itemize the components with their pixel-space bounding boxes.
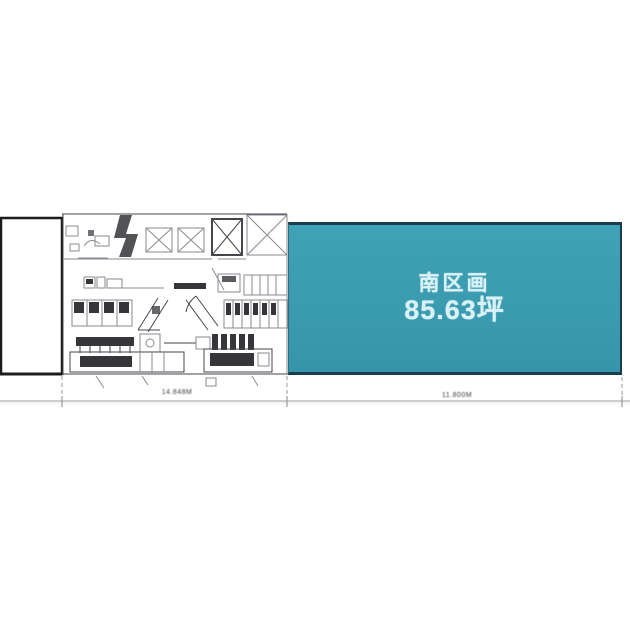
elevator-bank (146, 215, 287, 255)
restroom-stalls (72, 296, 288, 332)
core-plan (62, 214, 288, 388)
stairwell (114, 215, 138, 257)
south-section-name: 南区画 (419, 272, 491, 295)
mid-fixtures (84, 268, 287, 295)
left-section-outline (0, 218, 62, 374)
south-section-area: 85.63坪 (404, 296, 505, 326)
dimension-line (0, 376, 630, 407)
dimension-label-left: 14.848M (162, 389, 193, 396)
entry-lobby-linework (66, 226, 109, 258)
floorplan-image: 南区画 85.63坪 14.848M 11.800M (0, 0, 630, 630)
lower-fixtures (70, 334, 272, 388)
south-section-overlay: 南区画 85.63坪 (288, 222, 622, 375)
dimension-label-right: 11.800M (442, 392, 472, 399)
